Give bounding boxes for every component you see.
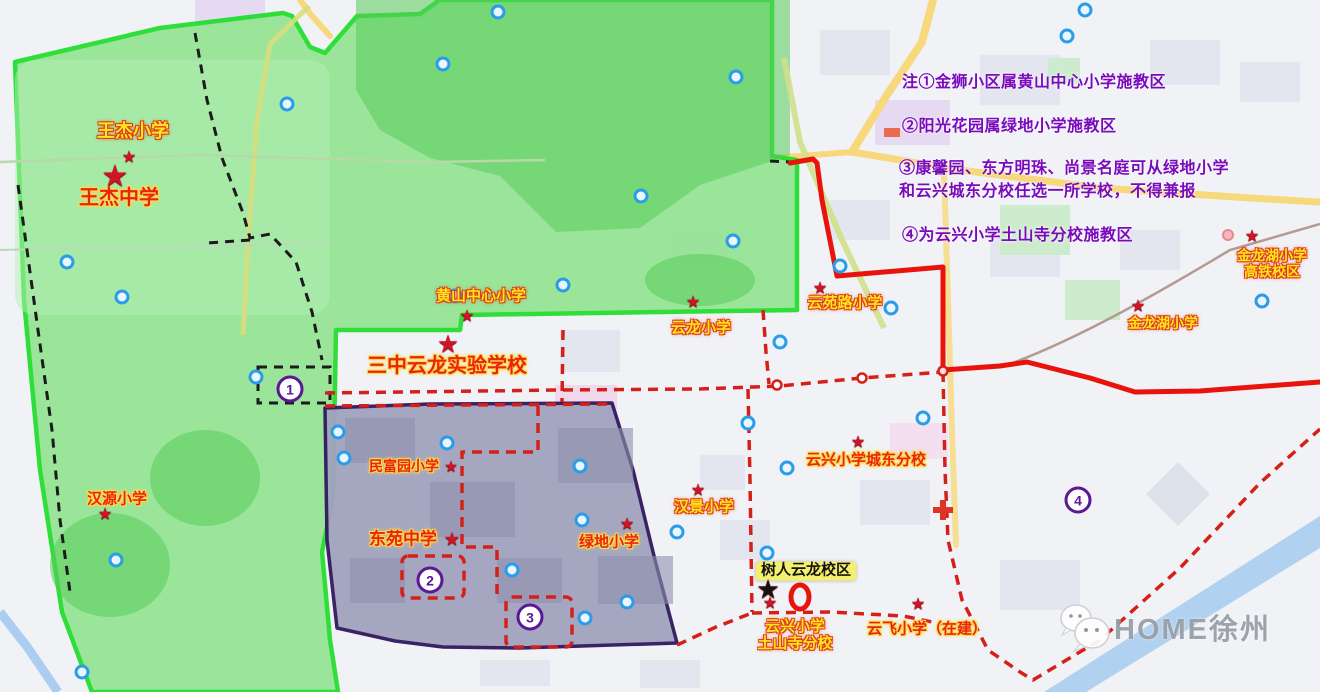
school-label-yunxing-chengdong-branch: 云兴小学城东分校	[806, 453, 926, 470]
label-overlay: 注①金狮小区属黄山中心小学施教区②阳光花园属绿地小学施教区③康馨园、东方明珠、尚…	[0, 0, 1320, 692]
school-star-icon: ★	[691, 483, 705, 499]
school-star-icon: ★	[444, 530, 460, 548]
school-label-line: 云龙小学	[671, 321, 731, 338]
school-star-icon: ★	[444, 460, 457, 475]
school-star-icon: ★	[851, 435, 865, 451]
school-label-line: 云飞小学（在建）	[867, 622, 987, 639]
school-label-wangjie-primary: 王杰小学	[97, 121, 169, 141]
school-label-line: 绿地小学	[579, 535, 639, 552]
map-note: ②阳光花园属绿地小学施教区	[902, 112, 1117, 136]
school-label-yunfei-primary-under-construction: 云飞小学（在建）	[867, 622, 987, 639]
school-star-icon: ★	[98, 507, 112, 523]
school-label-line: 王杰小学	[97, 121, 169, 141]
school-label-jinlonghu-primary-gaotie-campus: 金龙湖小学高铁校区	[1237, 248, 1307, 279]
school-label-dongyuan-middle: 东苑中学	[369, 529, 437, 548]
school-label-lvdi-primary: 绿地小学	[579, 535, 639, 552]
school-label-line: 东苑中学	[369, 529, 437, 548]
school-star-icon: ★	[686, 295, 700, 311]
map-note: ④为云兴小学土山寺分校施教区	[902, 221, 1133, 245]
school-label-hanyuan-primary: 汉源小学	[87, 492, 147, 509]
school-label-line: 云苑路小学	[807, 296, 882, 313]
map-note: 和云兴城东分校任选一所学校，不得兼报	[899, 177, 1196, 201]
tushansi-red-star-icon: ★	[763, 596, 777, 612]
zone-number-badge-2: 2	[417, 567, 444, 594]
school-star-icon: ★	[437, 333, 459, 357]
school-label-jinlonghu-primary: 金龙湖小学	[1128, 316, 1198, 332]
school-label-line: 黄山中心小学	[436, 289, 526, 306]
watermark: HOME徐州	[1056, 600, 1271, 654]
school-label-sanzhong-yunlong-experimental: 三中云龙实验学校	[367, 355, 527, 377]
school-star-icon: ★	[460, 309, 474, 325]
map-note: ③康馨园、东方明珠、尚景名庭可从绿地小学	[899, 154, 1229, 178]
school-label-line: 汉源小学	[87, 492, 147, 509]
school-label-line: 云兴小学	[757, 619, 832, 636]
map-note: 注①金狮小区属黄山中心小学施教区	[902, 68, 1166, 92]
school-label-huangshan-central-primary: 黄山中心小学	[436, 289, 526, 306]
school-label-yunxing-tushansi-branch: 云兴小学土山寺分校	[757, 619, 832, 653]
school-star-icon: ★	[1245, 229, 1259, 245]
school-star-icon: ★	[102, 162, 129, 192]
zone-number-badge-4: 4	[1065, 487, 1092, 514]
district-map-image: 注①金狮小区属黄山中心小学施教区②阳光花园属绿地小学施教区③康馨园、东方明珠、尚…	[0, 0, 1320, 692]
school-label-line: 土山寺分校	[757, 636, 832, 653]
school-label-line: 民富园小学	[369, 459, 439, 475]
school-star-icon: ★	[1131, 299, 1145, 315]
school-label-line: 金龙湖小学	[1237, 248, 1307, 264]
school-label-line: 汉景小学	[674, 500, 734, 517]
wechat-icon	[1056, 600, 1114, 654]
watermark-text: HOME徐州	[1114, 606, 1271, 648]
school-label-yunyuanlu-primary: 云苑路小学	[807, 296, 882, 313]
zone-number-badge-3: 3	[517, 604, 544, 631]
zone-number-badge-1: 1	[277, 376, 304, 403]
school-star-icon: ★	[911, 597, 925, 613]
school-star-icon: ★	[620, 517, 634, 533]
school-label-minfuyuan-primary: 民富园小学	[369, 459, 439, 475]
school-label-line: 云兴小学城东分校	[806, 453, 926, 470]
school-label-line: 高铁校区	[1237, 264, 1307, 280]
school-label-line: 金龙湖小学	[1128, 316, 1198, 332]
school-label-hanjing-primary: 汉景小学	[674, 500, 734, 517]
school-star-icon: ★	[813, 281, 827, 297]
school-label-yunlong-primary: 云龙小学	[671, 321, 731, 338]
school-label-line: 三中云龙实验学校	[367, 355, 527, 377]
